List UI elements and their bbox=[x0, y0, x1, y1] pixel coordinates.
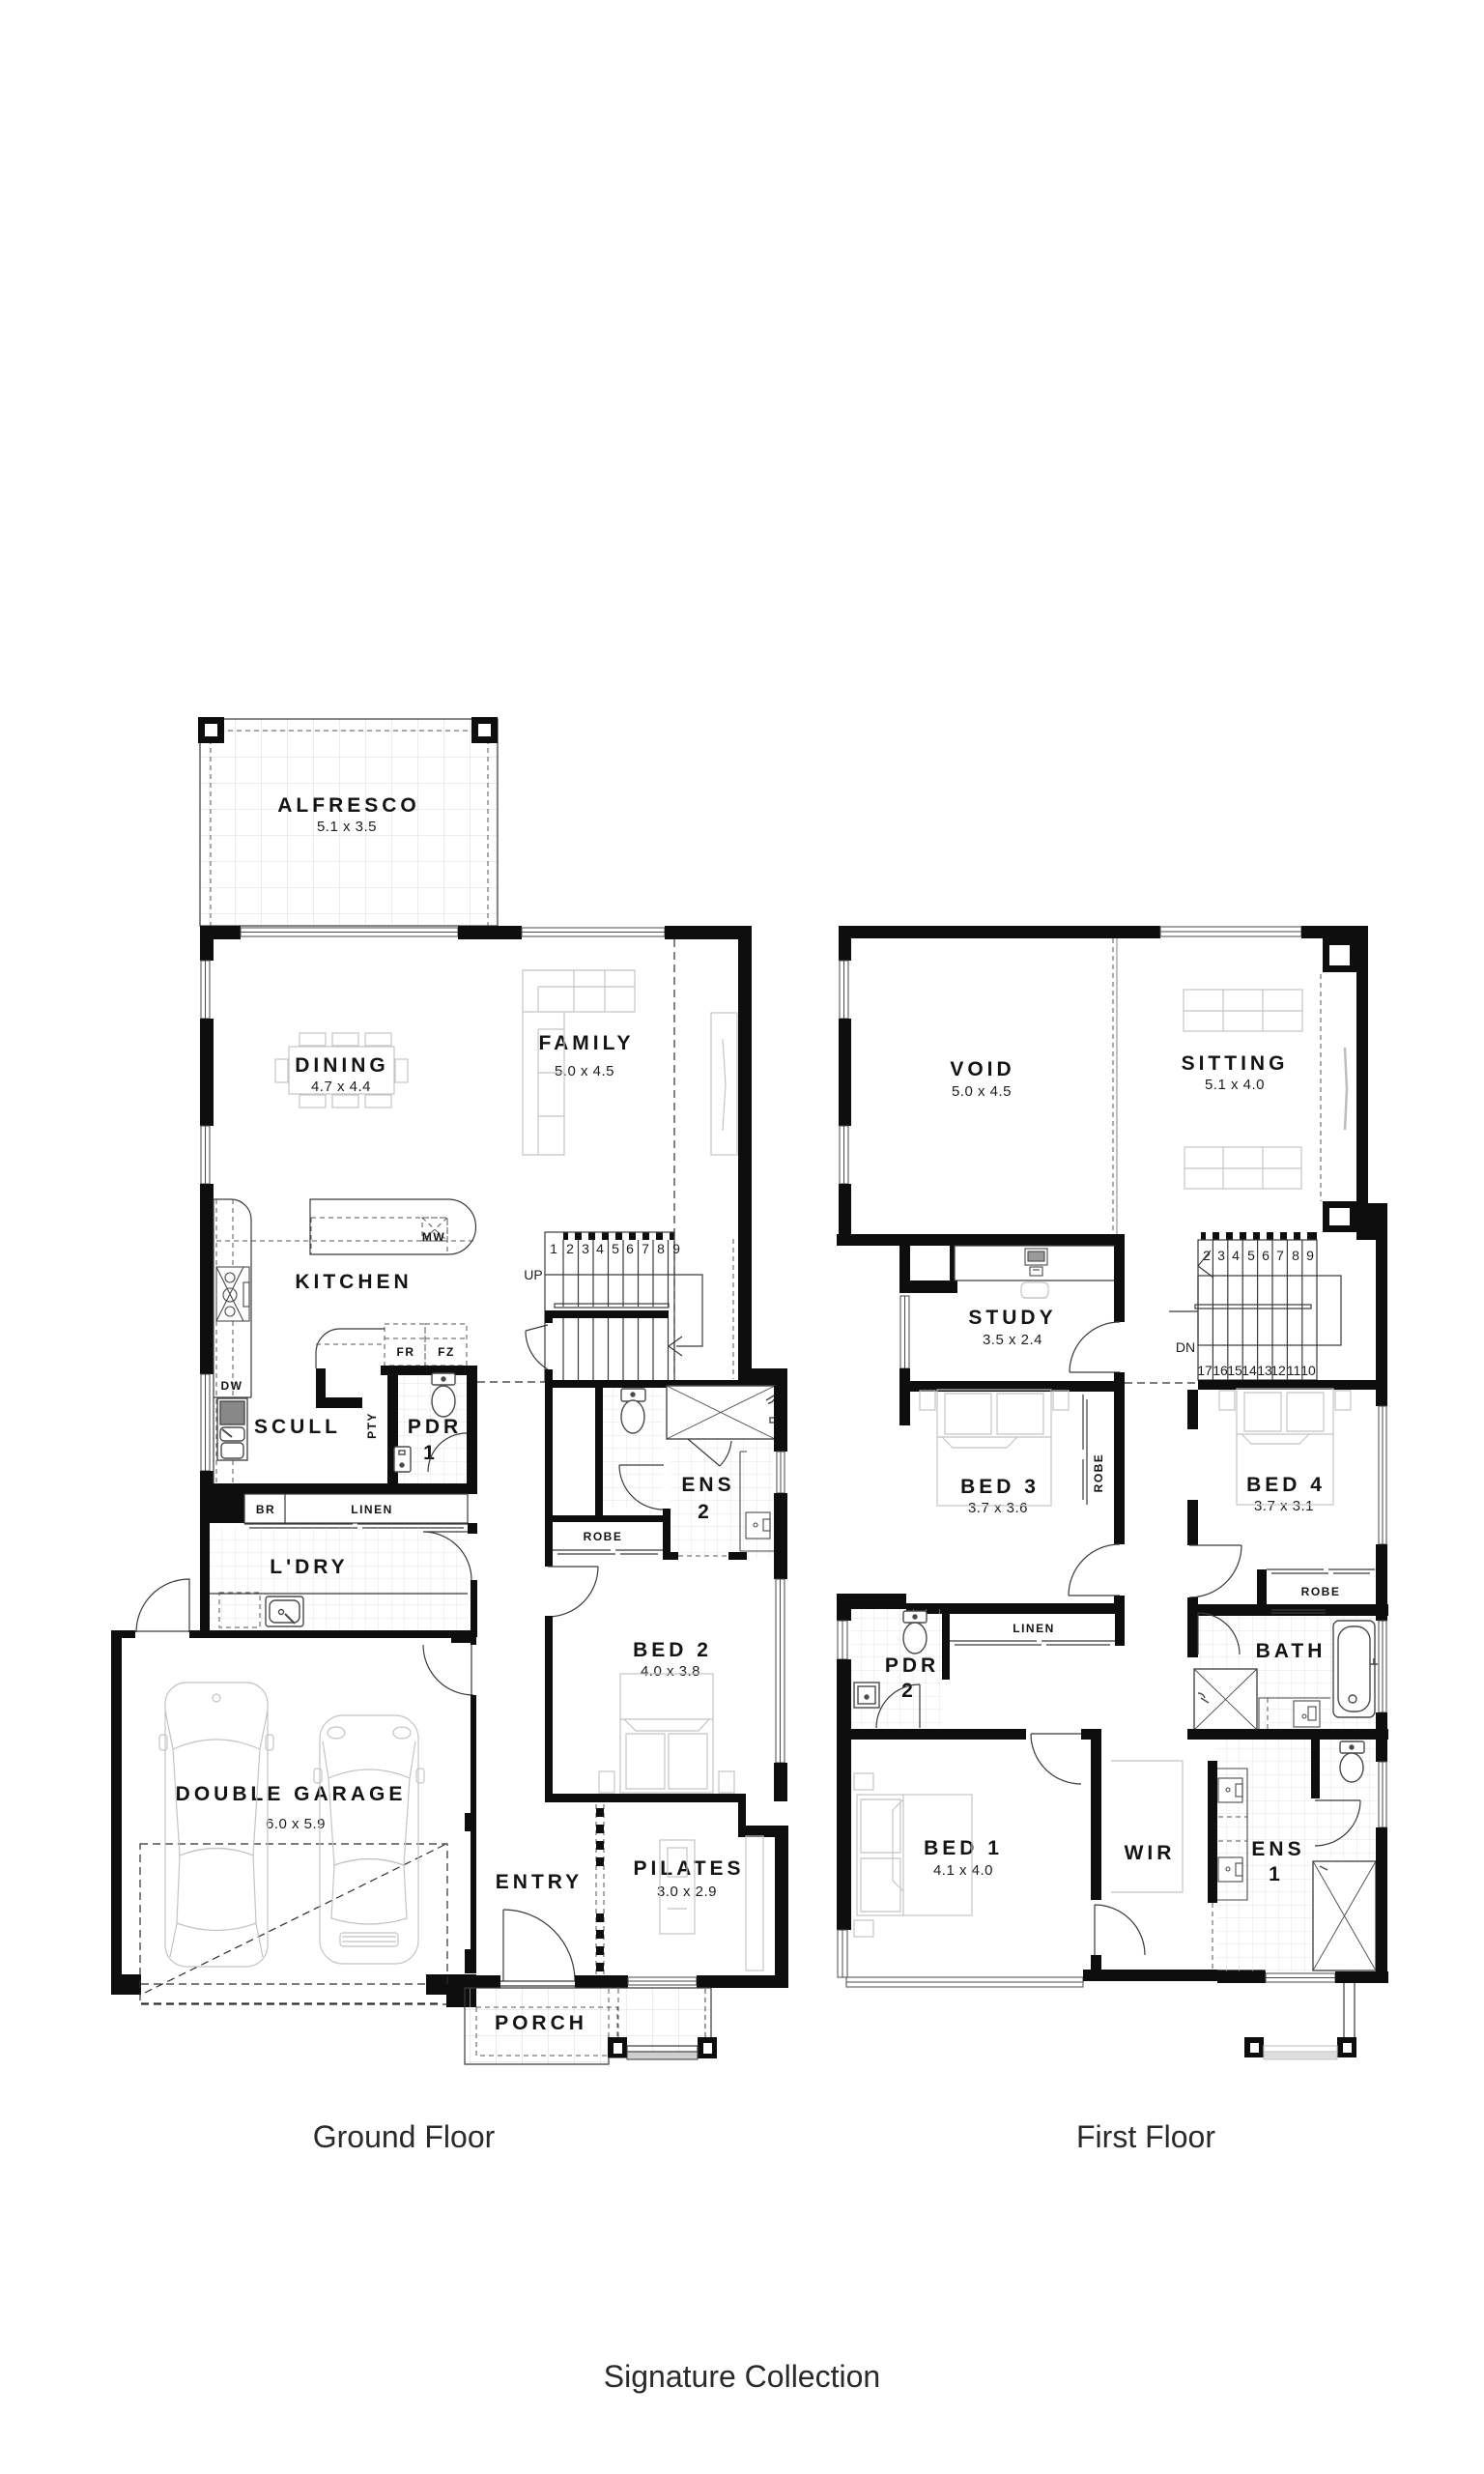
svg-text:3.0 x 2.9: 3.0 x 2.9 bbox=[657, 1884, 717, 1900]
svg-text:ENS: ENS bbox=[1251, 1838, 1304, 1860]
svg-text:2: 2 bbox=[698, 1501, 713, 1523]
svg-text:5: 5 bbox=[1247, 1248, 1255, 1263]
svg-text:DN: DN bbox=[1176, 1339, 1195, 1355]
svg-text:4.0 x 3.8: 4.0 x 3.8 bbox=[641, 1663, 700, 1680]
svg-text:15: 15 bbox=[1227, 1363, 1242, 1378]
svg-text:1: 1 bbox=[550, 1241, 557, 1256]
svg-text:2: 2 bbox=[901, 1680, 917, 1702]
svg-text:PTY: PTY bbox=[365, 1412, 379, 1439]
svg-text:ALFRESCO: ALFRESCO bbox=[277, 794, 420, 817]
svg-text:DINING: DINING bbox=[295, 1054, 389, 1077]
svg-text:3.7 x 3.6: 3.7 x 3.6 bbox=[968, 1500, 1028, 1516]
svg-text:2: 2 bbox=[566, 1241, 574, 1256]
svg-text:9: 9 bbox=[672, 1241, 680, 1256]
svg-text:4.7 x 4.4: 4.7 x 4.4 bbox=[311, 1079, 371, 1095]
svg-text:BR: BR bbox=[256, 1503, 275, 1516]
svg-text:FZ: FZ bbox=[438, 1345, 455, 1359]
svg-text:VOID: VOID bbox=[950, 1058, 1014, 1080]
svg-text:6.0 x 5.9: 6.0 x 5.9 bbox=[266, 1816, 326, 1832]
svg-text:14: 14 bbox=[1241, 1363, 1257, 1378]
svg-text:KITCHEN: KITCHEN bbox=[295, 1271, 412, 1293]
svg-text:ROBE: ROBE bbox=[1301, 1585, 1341, 1598]
svg-text:STUDY: STUDY bbox=[968, 1307, 1056, 1329]
svg-text:11: 11 bbox=[1287, 1363, 1301, 1378]
svg-text:4.1 x 4.0: 4.1 x 4.0 bbox=[933, 1862, 993, 1879]
svg-text:WIR: WIR bbox=[1125, 1842, 1176, 1864]
svg-text:DOUBLE GARAGE: DOUBLE GARAGE bbox=[176, 1783, 407, 1805]
svg-text:LINEN: LINEN bbox=[1013, 1622, 1055, 1635]
svg-text:PORCH: PORCH bbox=[495, 2012, 587, 2034]
svg-text:6: 6 bbox=[626, 1241, 634, 1256]
svg-text:SITTING: SITTING bbox=[1182, 1052, 1289, 1075]
svg-text:3.5 x 2.4: 3.5 x 2.4 bbox=[983, 1332, 1042, 1348]
svg-text:5.1 x 3.5: 5.1 x 3.5 bbox=[317, 819, 377, 835]
svg-text:7: 7 bbox=[1276, 1248, 1284, 1263]
svg-text:4: 4 bbox=[1232, 1248, 1240, 1263]
svg-text:5: 5 bbox=[612, 1241, 619, 1256]
svg-text:LINEN: LINEN bbox=[351, 1503, 393, 1516]
svg-text:BED 1: BED 1 bbox=[924, 1837, 1003, 1859]
svg-text:ROBE: ROBE bbox=[584, 1530, 623, 1543]
svg-text:SCULL: SCULL bbox=[254, 1416, 341, 1438]
svg-text:3: 3 bbox=[582, 1241, 589, 1256]
svg-text:8: 8 bbox=[657, 1241, 665, 1256]
svg-text:FAMILY: FAMILY bbox=[538, 1032, 634, 1054]
svg-text:PILATES: PILATES bbox=[633, 1857, 744, 1880]
svg-text:MW: MW bbox=[422, 1230, 445, 1244]
svg-text:10: 10 bbox=[1300, 1363, 1316, 1378]
svg-text:7: 7 bbox=[642, 1241, 649, 1256]
svg-text:ENS: ENS bbox=[681, 1474, 734, 1496]
svg-text:12: 12 bbox=[1270, 1363, 1286, 1378]
svg-text:BED 2: BED 2 bbox=[633, 1639, 712, 1661]
svg-text:8: 8 bbox=[1292, 1248, 1299, 1263]
svg-text:9: 9 bbox=[1306, 1248, 1314, 1263]
svg-text:1: 1 bbox=[423, 1442, 439, 1464]
svg-text:BATH: BATH bbox=[1256, 1640, 1327, 1662]
svg-text:3.7 x 3.1: 3.7 x 3.1 bbox=[1254, 1498, 1314, 1514]
svg-text:ROBE: ROBE bbox=[1092, 1453, 1105, 1493]
svg-text:FR: FR bbox=[397, 1345, 415, 1359]
svg-text:PDR: PDR bbox=[885, 1654, 939, 1677]
svg-text:6: 6 bbox=[1262, 1248, 1270, 1263]
svg-text:17: 17 bbox=[1197, 1363, 1213, 1378]
svg-text:L'DRY: L'DRY bbox=[270, 1556, 348, 1578]
svg-text:5.0 x 4.5: 5.0 x 4.5 bbox=[952, 1083, 1012, 1100]
svg-text:First Floor: First Floor bbox=[1076, 2119, 1215, 2154]
svg-text:5.0 x 4.5: 5.0 x 4.5 bbox=[555, 1063, 614, 1079]
svg-text:Ground Floor: Ground Floor bbox=[313, 2119, 496, 2154]
svg-text:16: 16 bbox=[1213, 1363, 1228, 1378]
svg-text:ENTRY: ENTRY bbox=[496, 1871, 583, 1893]
svg-text:UP: UP bbox=[524, 1267, 542, 1282]
svg-text:BED 4: BED 4 bbox=[1246, 1474, 1326, 1496]
svg-text:5.1 x 4.0: 5.1 x 4.0 bbox=[1205, 1077, 1265, 1093]
svg-text:3: 3 bbox=[1217, 1248, 1225, 1263]
svg-text:4: 4 bbox=[596, 1241, 604, 1256]
svg-text:DW: DW bbox=[221, 1379, 243, 1393]
svg-text:BED 3: BED 3 bbox=[960, 1476, 1040, 1498]
svg-text:Signature Collection: Signature Collection bbox=[604, 2359, 880, 2394]
svg-text:1: 1 bbox=[1269, 1863, 1284, 1885]
